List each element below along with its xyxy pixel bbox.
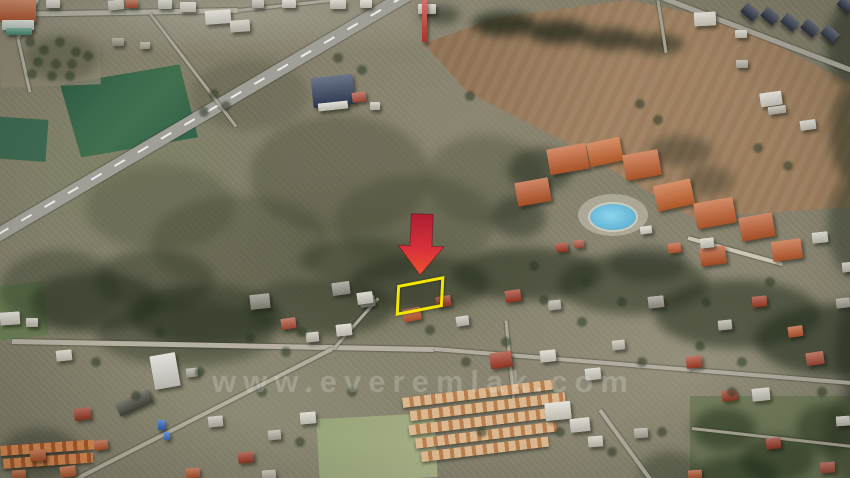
tree-icon bbox=[555, 427, 565, 437]
building bbox=[612, 339, 626, 350]
tree-icon bbox=[783, 161, 793, 171]
tree-icon bbox=[817, 387, 827, 397]
building bbox=[29, 449, 46, 462]
tree-icon bbox=[529, 261, 539, 271]
building bbox=[46, 0, 60, 8]
building bbox=[108, 0, 125, 11]
tree-icon bbox=[209, 89, 219, 99]
building bbox=[335, 323, 352, 337]
building bbox=[330, 0, 346, 9]
tree-icon bbox=[737, 357, 747, 367]
vegetation-patch bbox=[472, 12, 536, 36]
building bbox=[140, 42, 150, 49]
building bbox=[55, 349, 72, 362]
building bbox=[805, 351, 825, 366]
tree-icon bbox=[55, 37, 65, 47]
building bbox=[282, 0, 296, 8]
building bbox=[699, 245, 727, 266]
building bbox=[647, 295, 664, 309]
tree-icon bbox=[51, 59, 61, 69]
building bbox=[688, 470, 703, 478]
tree-icon bbox=[195, 367, 205, 377]
field bbox=[0, 116, 48, 162]
watermark-text: www.everemlak.com bbox=[212, 364, 652, 400]
building bbox=[356, 291, 374, 305]
tree-icon bbox=[695, 341, 705, 351]
building bbox=[820, 461, 836, 473]
building bbox=[574, 239, 585, 248]
vegetation-patch bbox=[190, 60, 310, 130]
tree-icon bbox=[33, 57, 43, 67]
vegetation-patch bbox=[582, 28, 640, 50]
building bbox=[6, 28, 32, 35]
building bbox=[268, 429, 282, 440]
building bbox=[126, 0, 138, 8]
building bbox=[800, 18, 820, 37]
tree-icon bbox=[617, 297, 627, 307]
tree-icon bbox=[65, 71, 75, 81]
tree-icon bbox=[425, 325, 435, 335]
tree-icon bbox=[333, 53, 343, 63]
building bbox=[300, 411, 317, 424]
tree-icon bbox=[581, 277, 591, 287]
tree-icon bbox=[245, 333, 255, 343]
tree-icon bbox=[577, 317, 587, 327]
building bbox=[252, 0, 264, 8]
tree-icon bbox=[131, 391, 141, 401]
tree-icon bbox=[83, 51, 93, 61]
building bbox=[0, 0, 36, 22]
tree-icon bbox=[71, 47, 81, 57]
tree-icon bbox=[653, 115, 663, 125]
tree-icon bbox=[155, 327, 165, 337]
tree-icon bbox=[657, 427, 667, 437]
building bbox=[59, 465, 76, 478]
building bbox=[760, 6, 780, 25]
building bbox=[765, 437, 781, 450]
tree-icon bbox=[753, 143, 763, 153]
tree-icon bbox=[295, 437, 305, 447]
building bbox=[694, 11, 717, 26]
building bbox=[93, 439, 108, 451]
tree-icon bbox=[701, 297, 711, 307]
building bbox=[158, 420, 165, 430]
tree-icon bbox=[67, 59, 77, 69]
building bbox=[685, 355, 703, 369]
building bbox=[780, 12, 800, 31]
building bbox=[73, 407, 92, 421]
building bbox=[700, 237, 715, 248]
building bbox=[306, 331, 320, 342]
building bbox=[736, 60, 748, 68]
building bbox=[360, 0, 372, 8]
tree-icon bbox=[765, 277, 775, 287]
tree-icon bbox=[221, 101, 231, 111]
tree-icon bbox=[357, 65, 367, 75]
building bbox=[158, 0, 172, 9]
building bbox=[12, 470, 27, 478]
building bbox=[836, 416, 850, 427]
tree-icon bbox=[91, 357, 101, 367]
building bbox=[351, 91, 366, 103]
building bbox=[26, 318, 38, 327]
building bbox=[751, 295, 767, 308]
road bbox=[598, 409, 651, 478]
swimming-pool bbox=[590, 204, 636, 230]
building bbox=[422, 0, 427, 42]
building bbox=[418, 4, 436, 14]
satellite-map: www.everemlak.com bbox=[0, 0, 850, 478]
building bbox=[262, 470, 277, 478]
building bbox=[693, 197, 737, 230]
building bbox=[738, 212, 776, 242]
building bbox=[546, 143, 590, 176]
vegetation-patch bbox=[632, 34, 684, 54]
tree-icon bbox=[199, 107, 209, 117]
building bbox=[514, 177, 552, 207]
building bbox=[751, 387, 770, 402]
building bbox=[811, 231, 828, 244]
building bbox=[112, 38, 124, 46]
building bbox=[455, 315, 469, 327]
building bbox=[668, 242, 682, 253]
building bbox=[569, 417, 590, 433]
tree-icon bbox=[47, 71, 57, 81]
tree-icon bbox=[501, 337, 511, 347]
tree-icon bbox=[297, 327, 307, 337]
building bbox=[544, 401, 572, 422]
vegetation-patch bbox=[528, 20, 590, 44]
tree-icon bbox=[281, 347, 291, 357]
building bbox=[787, 325, 803, 338]
building bbox=[331, 281, 351, 296]
building bbox=[539, 349, 556, 363]
building bbox=[149, 352, 181, 390]
building bbox=[205, 9, 232, 25]
building bbox=[718, 319, 733, 330]
building bbox=[249, 293, 270, 310]
tree-icon bbox=[465, 91, 475, 101]
building bbox=[186, 468, 201, 478]
building bbox=[207, 415, 223, 428]
building bbox=[370, 102, 380, 110]
building bbox=[842, 261, 850, 272]
building bbox=[771, 238, 803, 262]
building bbox=[504, 289, 522, 303]
tree-icon bbox=[39, 45, 49, 55]
tree-icon bbox=[635, 99, 645, 109]
tree-icon bbox=[727, 387, 737, 397]
building bbox=[735, 30, 747, 38]
building bbox=[237, 451, 254, 464]
building bbox=[230, 19, 251, 32]
tree-icon bbox=[27, 69, 37, 79]
building bbox=[0, 311, 20, 325]
building bbox=[588, 435, 604, 447]
tree-icon bbox=[477, 427, 487, 437]
marker-arrow-icon bbox=[394, 212, 448, 283]
tree-icon bbox=[539, 295, 549, 305]
building bbox=[318, 100, 349, 111]
tree-icon bbox=[25, 37, 35, 47]
building bbox=[634, 428, 649, 439]
tree-icon bbox=[607, 447, 617, 457]
building bbox=[164, 432, 170, 440]
building bbox=[740, 2, 760, 21]
building bbox=[180, 2, 196, 12]
building bbox=[836, 297, 850, 308]
building bbox=[280, 317, 296, 330]
building bbox=[548, 299, 562, 310]
building bbox=[556, 242, 569, 252]
